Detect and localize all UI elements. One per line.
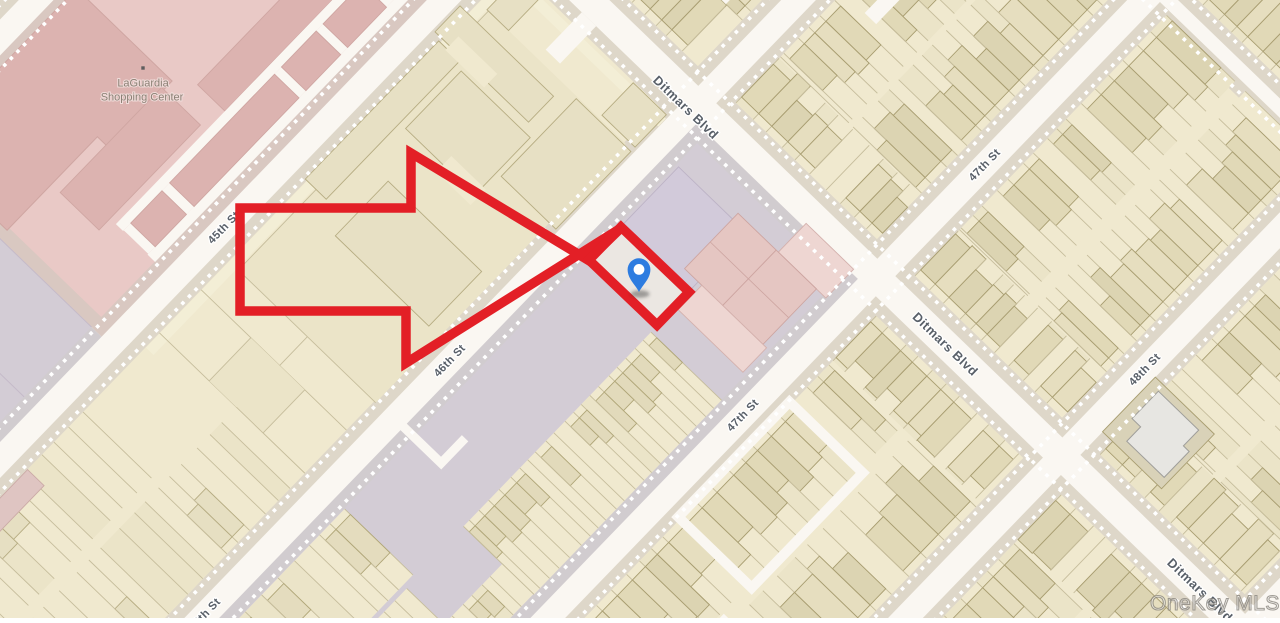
svg-text:OneKey MLS: OneKey MLS — [1150, 592, 1280, 615]
svg-text:Shopping Center: Shopping Center — [101, 92, 184, 104]
svg-text:LaGuardia: LaGuardia — [117, 78, 169, 90]
